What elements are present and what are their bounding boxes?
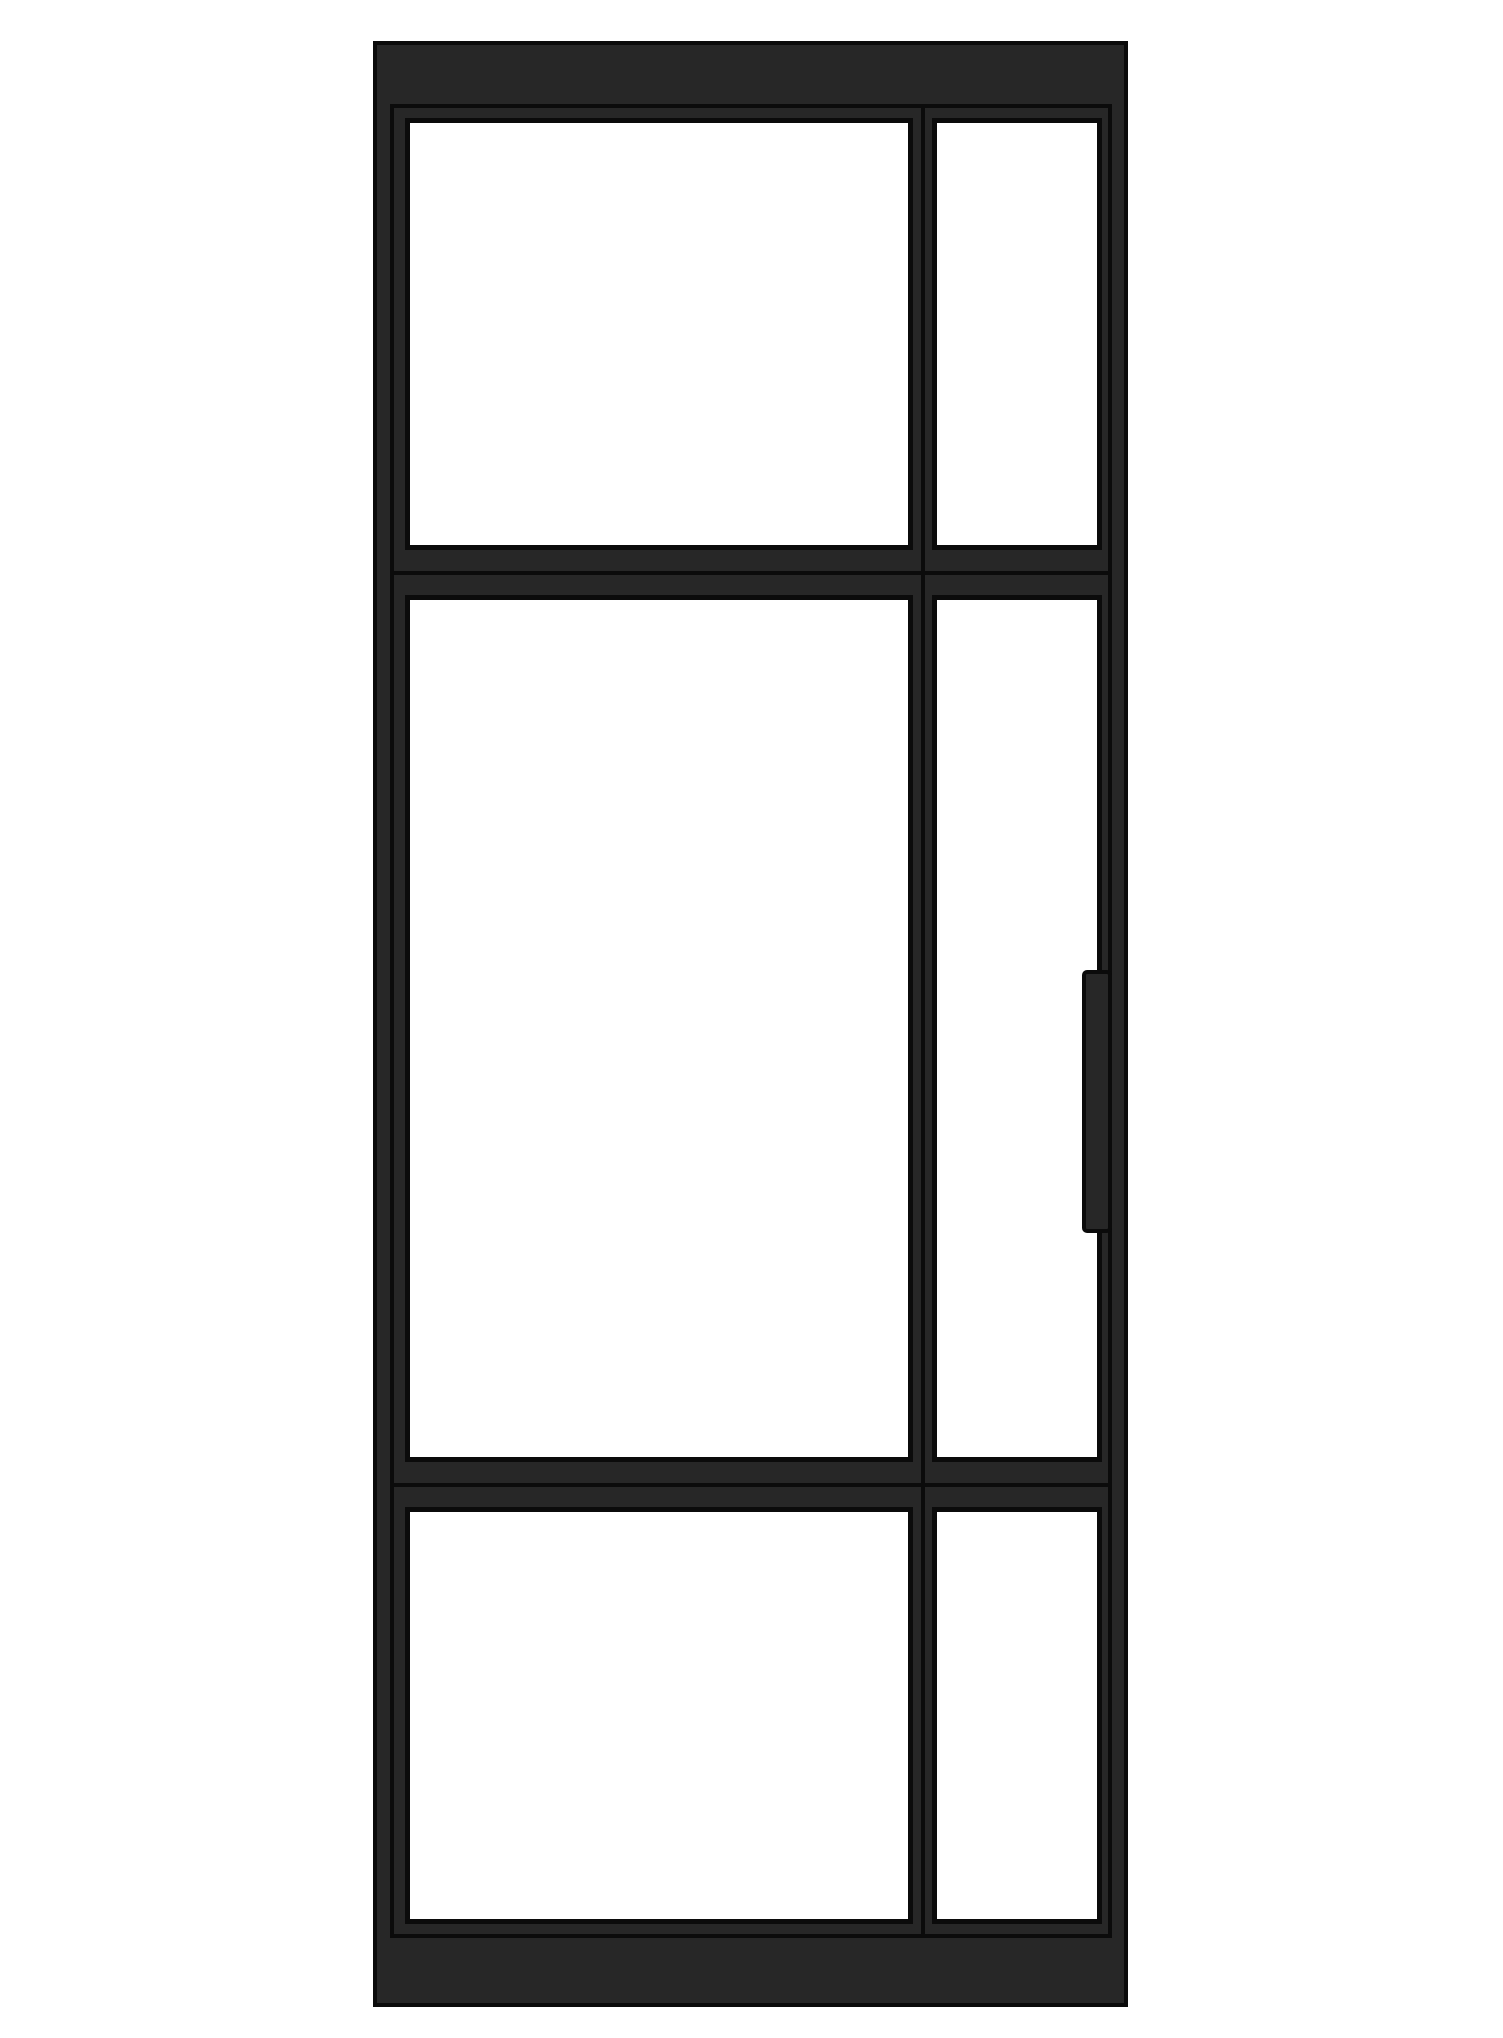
door-outer-outline bbox=[373, 41, 1128, 2007]
door-elevation-canvas bbox=[0, 0, 1503, 2038]
door-frame bbox=[373, 41, 1128, 2007]
